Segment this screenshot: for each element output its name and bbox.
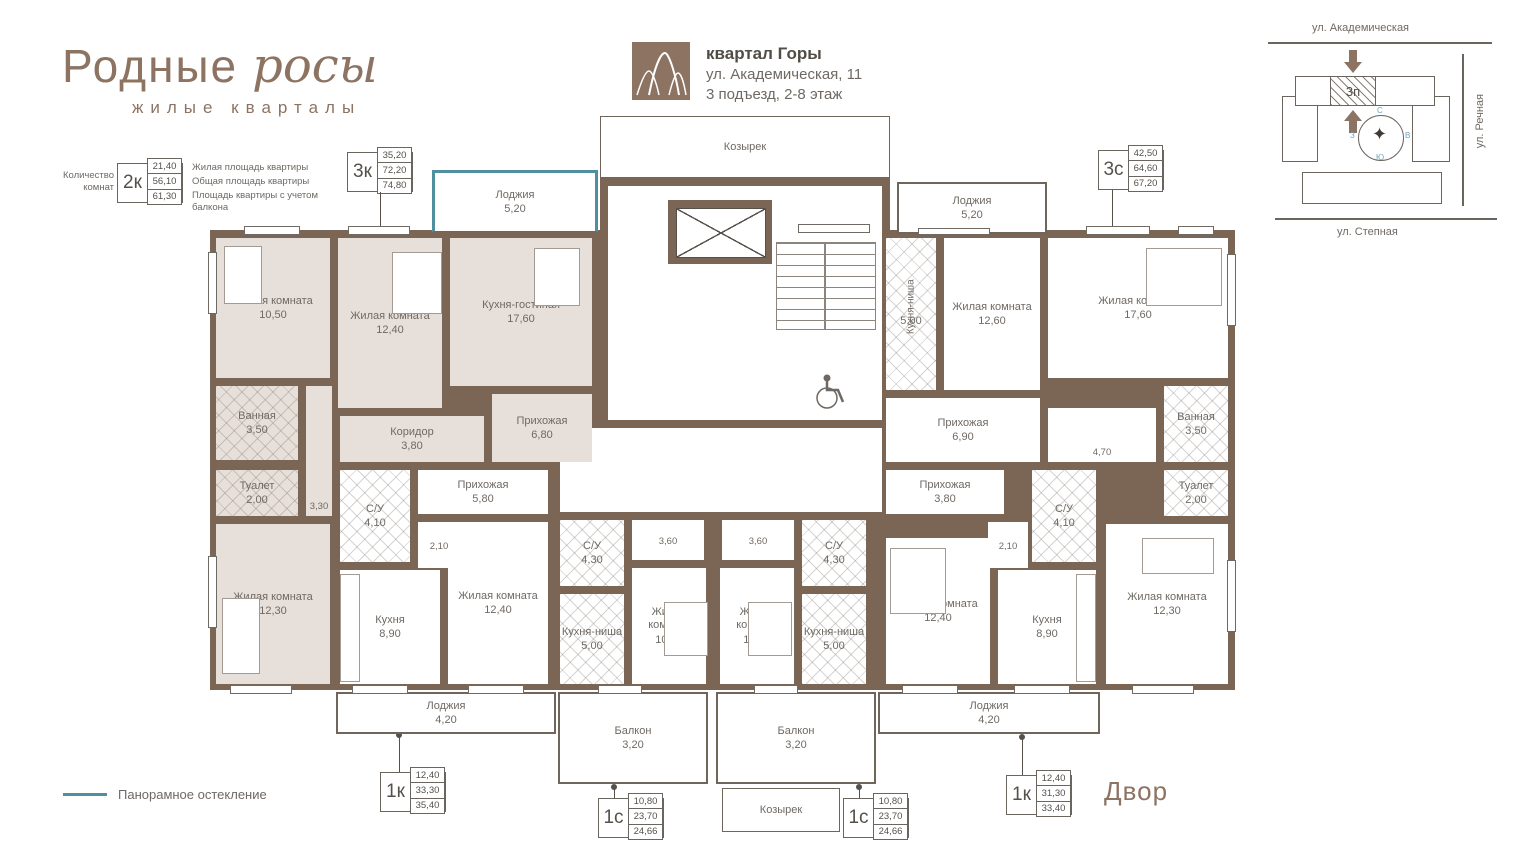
- room-name: Прихожая: [517, 415, 568, 428]
- furniture-item: [534, 248, 580, 306]
- panoramic-glazing-line: [63, 793, 107, 796]
- room-area: 6,90: [952, 431, 973, 443]
- room-name: Козырек: [724, 141, 766, 154]
- room-name: Лоджия: [970, 700, 1009, 713]
- floor-plan: КозырекЛоджия5,20Лоджия5,20Жилая комната…: [0, 0, 1520, 854]
- room-area: 4,10: [1053, 517, 1074, 529]
- room-area: 8,90: [379, 628, 400, 640]
- room-name: С/У: [825, 540, 843, 553]
- window: [798, 224, 870, 233]
- window: [348, 226, 410, 235]
- room-name: Кухня-ниша: [562, 626, 622, 639]
- room-name: Жилая комната: [952, 301, 1031, 314]
- room-name: Кухня: [1032, 614, 1061, 627]
- room-area: 8,90: [1036, 628, 1057, 640]
- koridor-3k: Коридор3,80: [340, 416, 484, 462]
- furniture-item: [1146, 248, 1222, 306]
- room-area: 2,00: [1185, 494, 1206, 506]
- room-area: 12,40: [484, 604, 512, 616]
- kozyrek-bottom: Козырек: [722, 788, 840, 832]
- window: [208, 252, 217, 314]
- prihozhaya-1k-left: Прихожая5,80: [418, 470, 548, 514]
- furniture-item: [340, 574, 360, 682]
- balkon-left: Балкон3,20: [558, 692, 708, 784]
- kozyrek-top: Козырек: [600, 116, 890, 178]
- balkon-right: Балкон3,20: [716, 692, 876, 784]
- window: [1132, 685, 1194, 694]
- room-name: Козырек: [760, 804, 802, 817]
- room-name: Лоджия: [427, 700, 466, 713]
- koridor-4-70: 4,70: [1048, 408, 1156, 462]
- lodzhiya-3s: Лоджия5,20: [897, 182, 1047, 234]
- room-area: 3,50: [1185, 425, 1206, 437]
- room-area: 3,50: [246, 424, 267, 436]
- room-area: 5,20: [961, 209, 982, 221]
- zhilaya-12-60-3s: Жилая комната12,60: [944, 238, 1040, 390]
- lodzhiya-1k-left: Лоджия4,20: [336, 692, 556, 734]
- furniture-item: [664, 602, 708, 656]
- window: [754, 685, 798, 694]
- room-area: 2,10: [999, 541, 1018, 552]
- room-name: Жилая комната: [1127, 591, 1206, 604]
- room-area: 17,60: [1124, 309, 1152, 321]
- room-area: 3,80: [401, 440, 422, 452]
- su-1k-right: С/У4,10: [1032, 470, 1096, 562]
- room-area: 4,20: [435, 714, 456, 726]
- room-name: Жилая комната: [458, 590, 537, 603]
- prihozhaya-1k-right: Прихожая3,80: [886, 470, 1004, 514]
- room-name: Кухня-ниша: [804, 626, 864, 639]
- room-area: 17,60: [507, 313, 535, 325]
- window: [1227, 254, 1236, 326]
- room-area: 2,00: [246, 494, 267, 506]
- corridor-common: [560, 428, 882, 512]
- vannaya-3s: Ванная3,50: [1164, 386, 1228, 462]
- window: [468, 685, 524, 694]
- room-name: Прихожая: [938, 417, 989, 430]
- furniture-item: [890, 548, 946, 614]
- furniture-item: [224, 246, 262, 304]
- furniture-item: [1076, 574, 1096, 682]
- hall-3-60-left: 3,60: [632, 520, 704, 560]
- window: [1014, 685, 1070, 694]
- room-area: 12,40: [924, 612, 952, 624]
- room-area: 10,50: [259, 309, 287, 321]
- furniture-item: [392, 252, 442, 314]
- su-1s-right: С/У4,30: [802, 520, 866, 586]
- furniture-item: [1142, 538, 1214, 574]
- kuhnya-nisha-3s: Кухня-ниша5,00: [886, 238, 936, 390]
- furniture-item: [748, 602, 792, 656]
- window: [598, 685, 642, 694]
- room-area: 4,30: [823, 554, 844, 566]
- prihozhaya-3s: Прихожая6,90: [886, 398, 1040, 462]
- prihozhaya-3k: Прихожая6,80: [492, 394, 592, 462]
- room-name: Коридор: [390, 426, 433, 439]
- room-area: 6,80: [531, 429, 552, 441]
- room-name: Прихожая: [458, 479, 509, 492]
- room-name: Прихожая: [920, 479, 971, 492]
- stairs-icon: [776, 242, 876, 330]
- zhilaya-1k-left: Жилая комната12,40: [448, 522, 548, 684]
- room-area: 3,60: [749, 536, 768, 547]
- lodzhiya-1k-right: Лоджия4,20: [878, 692, 1100, 734]
- room-area: 5,20: [504, 203, 525, 215]
- hall-3-60-right: 3,60: [722, 520, 794, 560]
- room-name: Ванная: [1177, 411, 1215, 424]
- window: [1178, 226, 1214, 235]
- window: [1086, 226, 1150, 235]
- room-area: 2,10: [430, 541, 449, 552]
- window: [1227, 560, 1236, 632]
- lodzhiya-3k: Лоджия5,20: [432, 170, 598, 232]
- window: [230, 685, 292, 694]
- courtyard-label: Двор: [1104, 776, 1168, 807]
- room-name: Балкон: [615, 725, 652, 738]
- wheelchair-icon: [812, 372, 848, 412]
- floorplan-page: Родныеросы жилые кварталы квартал Горы у…: [0, 0, 1520, 854]
- window: [918, 228, 990, 235]
- koridor-2-10-right: 2,10: [988, 522, 1028, 568]
- su-1k-left: С/У4,10: [340, 470, 410, 562]
- window: [244, 226, 300, 235]
- room-name: С/У: [366, 503, 384, 516]
- panoramic-glazing-label: Панорамное остекление: [118, 787, 267, 802]
- kuhnya-nisha-1s-right: Кухня-ниша5,00: [802, 594, 866, 684]
- tualet-3k: Туалет2,00: [216, 470, 298, 516]
- window: [902, 685, 958, 694]
- room-name: Кухня: [375, 614, 404, 627]
- room-name: С/У: [583, 540, 601, 553]
- elevator-icon: [676, 208, 766, 258]
- room-name: Туалет: [240, 480, 275, 493]
- room-area: 4,20: [978, 714, 999, 726]
- room-area: 12,30: [259, 605, 287, 617]
- room-area: 3,30: [310, 501, 329, 512]
- room-area: 3,60: [659, 536, 678, 547]
- room-area: 5,00: [581, 640, 602, 652]
- tualet-3s: Туалет2,00: [1164, 470, 1228, 516]
- room-area: 5,80: [472, 493, 493, 505]
- furniture-item: [222, 598, 260, 674]
- koridor-3-30: 3,30: [306, 386, 332, 516]
- room-area: 3,80: [934, 493, 955, 505]
- room-name: Ванная: [238, 410, 276, 423]
- room-area: 4,70: [1093, 447, 1112, 458]
- room-area: 3,20: [622, 739, 643, 751]
- room-name: С/У: [1055, 503, 1073, 516]
- vannaya-3k: Ванная3,50: [216, 386, 298, 460]
- room-area: 12,60: [978, 315, 1006, 327]
- kuhnya-nisha-1s-left: Кухня-ниша5,00: [560, 594, 624, 684]
- window: [352, 685, 408, 694]
- room-area: 3,20: [785, 739, 806, 751]
- room-name: Балкон: [778, 725, 815, 738]
- su-1s-left: С/У4,30: [560, 520, 624, 586]
- room-area: 4,30: [581, 554, 602, 566]
- room-name: Туалет: [1179, 480, 1214, 493]
- room-area: 4,10: [364, 517, 385, 529]
- room-name: Лоджия: [953, 195, 992, 208]
- window: [208, 556, 217, 628]
- room-name: Лоджия: [496, 189, 535, 202]
- room-area: 5,00: [823, 640, 844, 652]
- room-name: Кухня-ниша: [905, 280, 917, 335]
- room-area: 12,40: [376, 324, 404, 336]
- room-area: 12,30: [1153, 605, 1181, 617]
